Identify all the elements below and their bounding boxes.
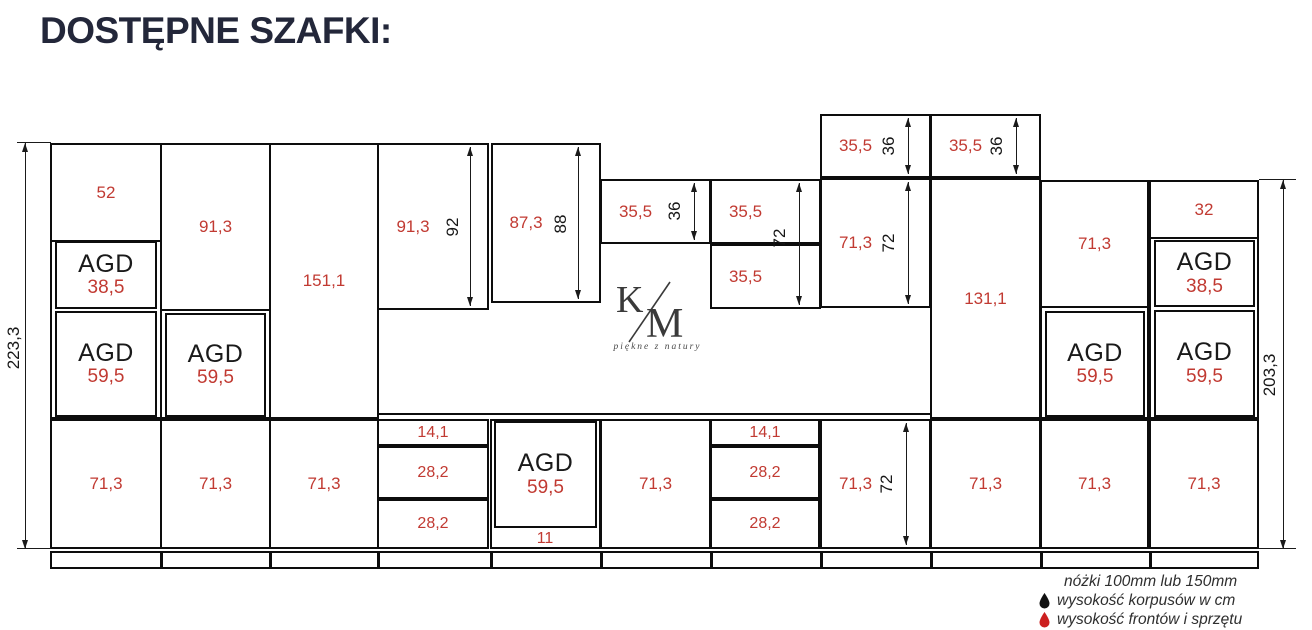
legend-feet-text: nóżki 100mm lub 150mm <box>1064 573 1237 591</box>
cabinet-355-g2: 35,5 <box>710 244 821 309</box>
cabinet-131: 131,1 <box>930 178 1041 419</box>
cabinet-agd-59-b: AGD59,5 <box>165 313 266 417</box>
cabinet-713-j-upper: 71,3 <box>1040 180 1149 308</box>
dim-label-88: 88 <box>551 215 571 234</box>
cabinet-base-a: 71,3 <box>50 419 162 549</box>
dim-label-total-left: 223,3 <box>4 327 24 370</box>
drawer-28-d2: 28,2 <box>377 499 489 549</box>
legend-front-text: wysokość frontów i sprzętu <box>1057 611 1242 629</box>
page-title: DOSTĘPNE SZAFKI: <box>40 10 392 52</box>
legend-row-front: wysokość frontów i sprzętu <box>1038 610 1308 629</box>
cabinet-52: 52 <box>50 143 162 242</box>
cabinet-base-i: 71,3 <box>930 419 1041 549</box>
cabinet-base-j: 71,3 <box>1040 419 1149 549</box>
cabinet-355-g1: 35,5 <box>710 179 821 244</box>
plinth-divider <box>710 553 713 567</box>
dim-arrow-88 <box>578 147 579 299</box>
km-logo: K M piękne z natury <box>600 276 715 358</box>
dim-arrow-36-i <box>1016 118 1017 174</box>
cabinet-base-b: 71,3 <box>160 419 271 549</box>
cabinet-agd-59-e: AGD59,5 <box>494 421 597 528</box>
cabinet-91-d: 91,3 <box>377 143 489 310</box>
legend-korpus-text: wysokość korpusów w cm <box>1057 592 1235 610</box>
cabinet-base-k: 71,3 <box>1149 419 1259 549</box>
logo-tagline: piękne z natury <box>600 342 715 352</box>
plinth-divider <box>269 553 272 567</box>
cabinet-agd-38-k: AGD38,5 <box>1154 240 1255 307</box>
drawer-11-label: 11 <box>537 530 554 548</box>
black-drop-icon <box>1038 593 1051 609</box>
dim-label-36-h: 36 <box>879 137 899 156</box>
plinth-divider <box>930 553 933 567</box>
dim-tick <box>1259 548 1296 549</box>
drawer-28-g1: 28,2 <box>710 446 820 499</box>
dim-arrow-72-h <box>908 182 909 304</box>
countertop-line <box>377 413 931 415</box>
cabinet-base-f: 71,3 <box>600 419 711 549</box>
cabinet-151: 151,1 <box>269 143 379 419</box>
cabinet-32: 32 <box>1149 180 1259 239</box>
dim-arrow-72-g <box>799 183 800 305</box>
plinth-strip <box>50 551 1259 569</box>
cabinet-base-h: 71,3 <box>820 419 931 549</box>
drawer-14-g: 14,1 <box>710 419 820 446</box>
dim-arrow-36-f <box>694 183 695 240</box>
cabinet-713-h-upper: 71,3 <box>820 178 931 308</box>
cabinet-355-i: 35,5 <box>930 114 1041 178</box>
logo-letter-m: M <box>646 300 683 348</box>
cabinet-agd-59-j: AGD59,5 <box>1045 311 1145 417</box>
plinth-divider <box>600 553 603 567</box>
cabinet-agd-59-k: AGD59,5 <box>1154 310 1255 417</box>
plinth-divider <box>377 553 380 567</box>
dim-label-72-h-base: 72 <box>877 475 897 494</box>
legend-row-feet: nóżki 100mm lub 150mm <box>1038 572 1308 591</box>
legend-row-korpus: wysokość korpusów w cm <box>1038 591 1308 610</box>
dim-label-total-right: 203,3 <box>1260 354 1280 397</box>
dim-label-72-g: 72 <box>770 229 790 248</box>
dim-label-36-f: 36 <box>665 202 685 221</box>
plinth-divider <box>820 553 823 567</box>
dim-arrow-36-h <box>908 118 909 174</box>
cabinet-355-h: 35,5 <box>820 114 931 178</box>
plinth-divider <box>1149 553 1152 567</box>
dim-arrow-total-left <box>25 143 26 549</box>
dim-arrow-92 <box>470 147 471 306</box>
cabinet-87: 87,3 <box>491 143 601 303</box>
dim-arrow-total-right <box>1283 180 1284 549</box>
cabinet-91-b: 91,3 <box>160 143 271 311</box>
red-drop-icon <box>1038 612 1051 628</box>
dim-arrow-72-h-base <box>906 423 907 545</box>
plinth-divider <box>160 553 163 567</box>
plinth-divider <box>490 553 493 567</box>
drawer-14-d: 14,1 <box>377 419 489 446</box>
dim-label-72-h: 72 <box>879 234 899 253</box>
cabinet-base-c: 71,3 <box>269 419 379 549</box>
drawer-28-d1: 28,2 <box>377 446 489 499</box>
dim-label-92: 92 <box>443 218 463 237</box>
dim-tick <box>1259 179 1296 180</box>
drawer-28-g2: 28,2 <box>710 499 820 549</box>
cabinet-agd-59-a: AGD59,5 <box>55 311 157 417</box>
cabinet-agd-38-a: AGD38,5 <box>55 241 157 309</box>
cabinet-diagram-page: DOSTĘPNE SZAFKI: 52 AGD38,5 AGD59,5 71,3… <box>0 0 1312 630</box>
legend: nóżki 100mm lub 150mm wysokość korpusów … <box>1038 572 1308 629</box>
dim-label-36-i: 36 <box>987 137 1007 156</box>
plinth-divider <box>1040 553 1043 567</box>
